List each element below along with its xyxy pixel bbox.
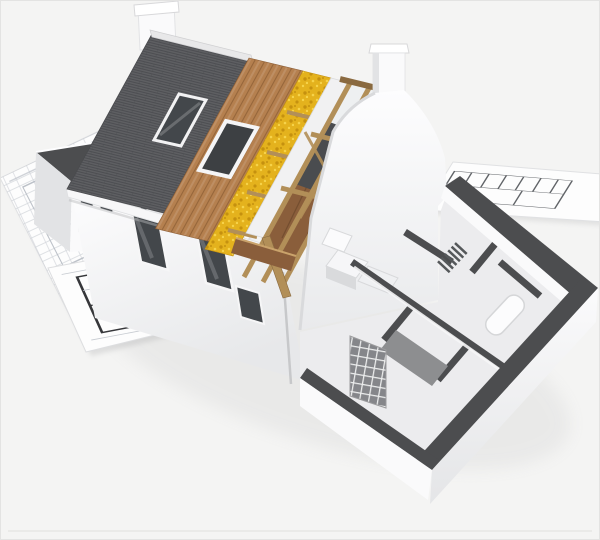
render-canvas: 3D cutaway house construction model on b… xyxy=(0,0,600,540)
architectural-render-image: 3D cutaway house construction model on b… xyxy=(0,0,600,540)
gable-chimney-cap xyxy=(369,44,409,53)
